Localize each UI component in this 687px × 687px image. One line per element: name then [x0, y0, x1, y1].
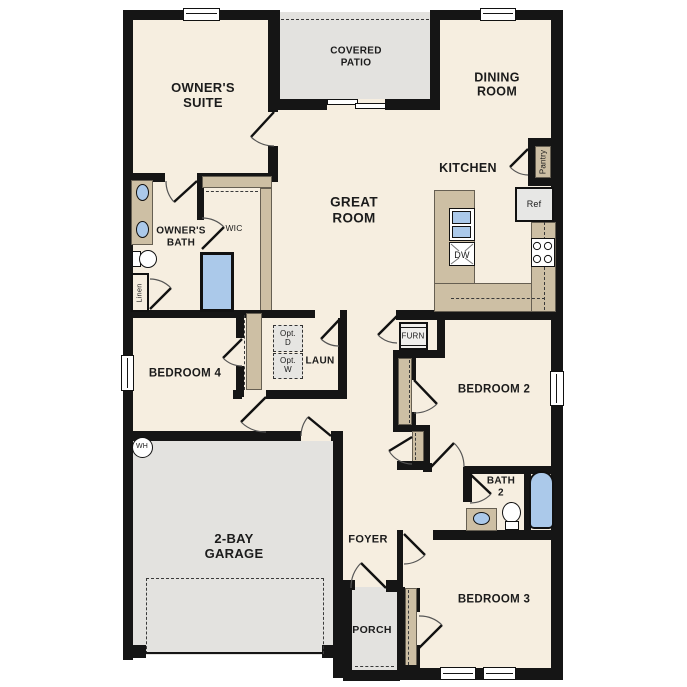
label-line: Opt. [280, 329, 296, 338]
room-label-wic: WIC [225, 224, 242, 234]
vanity-sink [136, 221, 149, 238]
window-mullion [556, 374, 557, 403]
window-mullion [186, 13, 217, 14]
room-label-garage: 2-BAY GARAGE [205, 532, 264, 562]
label-line: Opt. [280, 356, 296, 365]
wall [430, 12, 440, 110]
wall [393, 350, 445, 358]
wall [333, 441, 343, 658]
garage-door-outline [146, 578, 324, 654]
wall [397, 587, 405, 672]
room-label-owners-suite: OWNER'S SUITE [171, 81, 235, 111]
wall [463, 467, 472, 502]
window [550, 371, 564, 406]
wall [268, 18, 278, 112]
label-line: ROOM [330, 210, 378, 226]
label-line: OWNER'S [156, 226, 205, 238]
porch-edge-dashed [355, 666, 394, 667]
room-label-bedroom3: BEDROOM 3 [458, 593, 530, 606]
patio-roof-dashed-line [281, 19, 429, 20]
room-label-covered-patio: COVERED PATIO [330, 46, 382, 69]
water-heater-label: WH [136, 443, 148, 451]
wall [385, 99, 440, 110]
closet-rod-dashed [409, 360, 410, 423]
wic-wall-band [260, 188, 272, 312]
room-label-porch: PORCH [352, 624, 391, 636]
window-mullion [486, 673, 513, 674]
garage-door-threshold [146, 652, 322, 654]
wall [423, 463, 432, 472]
room-label-bedroom4: BEDROOM 4 [149, 367, 221, 380]
shower [200, 252, 234, 312]
label-line: DINING [474, 71, 520, 85]
label-line: 2 [487, 487, 515, 499]
label-line: COVERED [330, 46, 382, 58]
wall [343, 670, 400, 681]
furnace-shelf-line [401, 345, 426, 346]
wall [266, 390, 347, 399]
window-mullion [483, 13, 513, 14]
closet-rod-dashed [244, 315, 245, 390]
label-line: GREAT [330, 194, 378, 210]
window [480, 8, 516, 21]
wall [233, 390, 242, 399]
hall-closet [412, 431, 424, 463]
window [183, 8, 220, 21]
optional-dryer-label: Opt. D [280, 329, 296, 347]
label-line: SUITE [171, 96, 235, 111]
wall [433, 530, 551, 540]
bathtub [529, 471, 554, 529]
optional-washer-label: Opt. W [280, 356, 296, 374]
room-label-kitchen: KITCHEN [439, 161, 497, 175]
room-label-owners-bath: OWNER'S BATH [156, 226, 205, 249]
wall [340, 310, 347, 318]
closet-rod-dashed [415, 433, 416, 460]
toilet-bowl [502, 502, 521, 523]
pantry-label: Pantry [538, 150, 547, 174]
room-label-foyer: FOYER [348, 534, 387, 547]
wall [528, 178, 563, 186]
label-line: BATH [487, 476, 515, 488]
sink-basin [452, 226, 471, 238]
window-mullion [443, 673, 473, 674]
wall [551, 10, 563, 680]
label-line: W [280, 365, 296, 374]
label-line: PATIO [330, 57, 382, 69]
toilet-bowl [139, 250, 157, 268]
room-label-great-room: GREAT ROOM [330, 194, 378, 225]
floor-plan: OWNER'S SUITE COVERED PATIO DINING ROOM … [0, 0, 687, 687]
wall [417, 588, 420, 612]
label-line: ROOM [474, 85, 520, 99]
vanity-sink [473, 512, 490, 525]
room-label-bath2: BATH 2 [487, 476, 515, 499]
wall [397, 665, 420, 672]
sliding-door-panel [327, 99, 358, 105]
room-label-dining-room: DINING ROOM [474, 71, 520, 100]
bedroom4-closet [246, 313, 262, 390]
wall [417, 645, 420, 667]
label-line: OWNER'S [171, 81, 235, 96]
furnace-shelf-line [401, 327, 426, 328]
wic-wall-band [202, 176, 272, 188]
refrigerator-label: Ref [527, 199, 542, 209]
wall [236, 318, 244, 338]
vanity-sink [136, 184, 149, 201]
room-label-laundry: LAUN [306, 355, 335, 367]
wall [412, 358, 416, 380]
wall [331, 431, 343, 441]
furnace-label: FURN [401, 331, 424, 340]
dishwasher-label: DW [454, 250, 469, 260]
cooktop [531, 238, 555, 267]
room-label-bedroom2: BEDROOM 2 [458, 383, 530, 396]
wall [270, 99, 327, 110]
label-line: BATH [156, 237, 205, 249]
toilet-tank [505, 521, 519, 530]
wall [397, 530, 403, 590]
linen-label: Linen [136, 283, 145, 302]
label-line: 2-BAY [205, 532, 264, 547]
wall [397, 668, 563, 680]
wall [123, 645, 146, 658]
sliding-door-panel [355, 103, 386, 109]
bedroom3-closet [405, 588, 417, 667]
label-line: D [280, 338, 296, 347]
wic-shelf-dashed [206, 191, 258, 192]
wall [123, 10, 133, 660]
window-mullion [127, 358, 128, 388]
wall [341, 580, 355, 590]
wall [338, 318, 347, 390]
label-line: GARAGE [205, 547, 264, 562]
closet-rod-dashed [408, 590, 409, 665]
sink-basin [452, 211, 471, 224]
counter-edge-dashed [451, 298, 545, 299]
